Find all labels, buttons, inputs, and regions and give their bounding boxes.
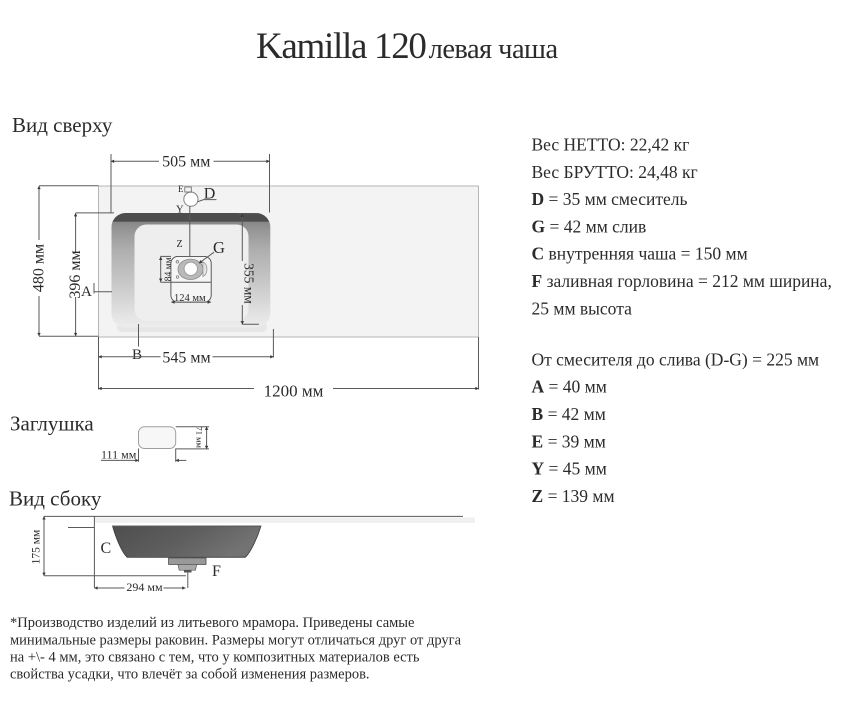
svg-text:G: G <box>213 238 225 257</box>
svg-text:111 мм: 111 мм <box>101 448 137 462</box>
svg-text:C: C <box>101 540 112 557</box>
svg-text:F заливная горловина = 212 мм: F заливная горловина = 212 мм ширина, <box>532 271 832 291</box>
svg-text:B = 42 мм: B = 42 мм <box>532 404 606 424</box>
svg-text:71 мм: 71 мм <box>194 427 204 449</box>
svg-text:E = 39 мм: E = 39 мм <box>532 431 606 451</box>
svg-text:25 мм высота: 25 мм высота <box>532 298 633 318</box>
svg-text:Вес БРУТТО: 24,48 кг: Вес БРУТТО: 24,48 кг <box>532 162 698 182</box>
svg-text:E: E <box>178 184 184 194</box>
svg-text:Z: Z <box>177 239 183 250</box>
svg-text:355 мм: 355 мм <box>242 263 257 304</box>
svg-text:480 мм: 480 мм <box>31 244 48 292</box>
svg-text:Заглушка: Заглушка <box>10 412 94 436</box>
svg-text:A: A <box>81 284 92 300</box>
svg-text:на +\- 4 мм, это связано с тем: на +\- 4 мм, это связано с тем, что у ко… <box>10 649 420 665</box>
svg-text:84 мм: 84 мм <box>164 257 174 281</box>
svg-text:Y: Y <box>176 204 184 215</box>
svg-text:G = 42 мм слив: G = 42 мм слив <box>532 216 647 236</box>
svg-text:D = 35 мм смеситель: D = 35 мм смеситель <box>532 189 688 209</box>
svg-text:Z = 139 мм: Z = 139 мм <box>532 486 615 506</box>
svg-text:545 мм: 545 мм <box>162 349 210 366</box>
svg-text:B: B <box>132 347 142 363</box>
svg-text:505 мм: 505 мм <box>162 153 210 170</box>
svg-text:минимальные размеры раковин. Р: минимальные размеры раковин. Размеры мог… <box>10 632 462 648</box>
svg-text:Вид сбоку: Вид сбоку <box>9 487 102 511</box>
svg-text:Вес НЕТТО: 22,42 кг: Вес НЕТТО: 22,42 кг <box>532 135 690 155</box>
svg-text:294 мм: 294 мм <box>126 580 163 594</box>
svg-text:1200 мм: 1200 мм <box>264 382 324 401</box>
svg-text:Y = 45 мм: Y = 45 мм <box>532 459 607 479</box>
svg-text:*Производство изделий из литье: *Производство изделий из литьевого мрамо… <box>10 615 415 631</box>
svg-text:От смесителя до слива (D-G) =: От смесителя до слива (D-G) = 225 мм <box>532 349 820 369</box>
svg-text:A = 40 мм: A = 40 мм <box>532 377 607 397</box>
svg-text:свойства усадки, что влечёт за: свойства усадки, что влечёт за собой изм… <box>10 666 370 682</box>
svg-text:C внутренняя чаша = 150 мм: C внутренняя чаша = 150 мм <box>532 244 748 264</box>
svg-text:124 мм: 124 мм <box>174 293 206 304</box>
svg-text:Вид сверху: Вид сверху <box>12 113 113 137</box>
svg-text:175 мм: 175 мм <box>31 529 43 564</box>
svg-text:F: F <box>212 563 221 580</box>
